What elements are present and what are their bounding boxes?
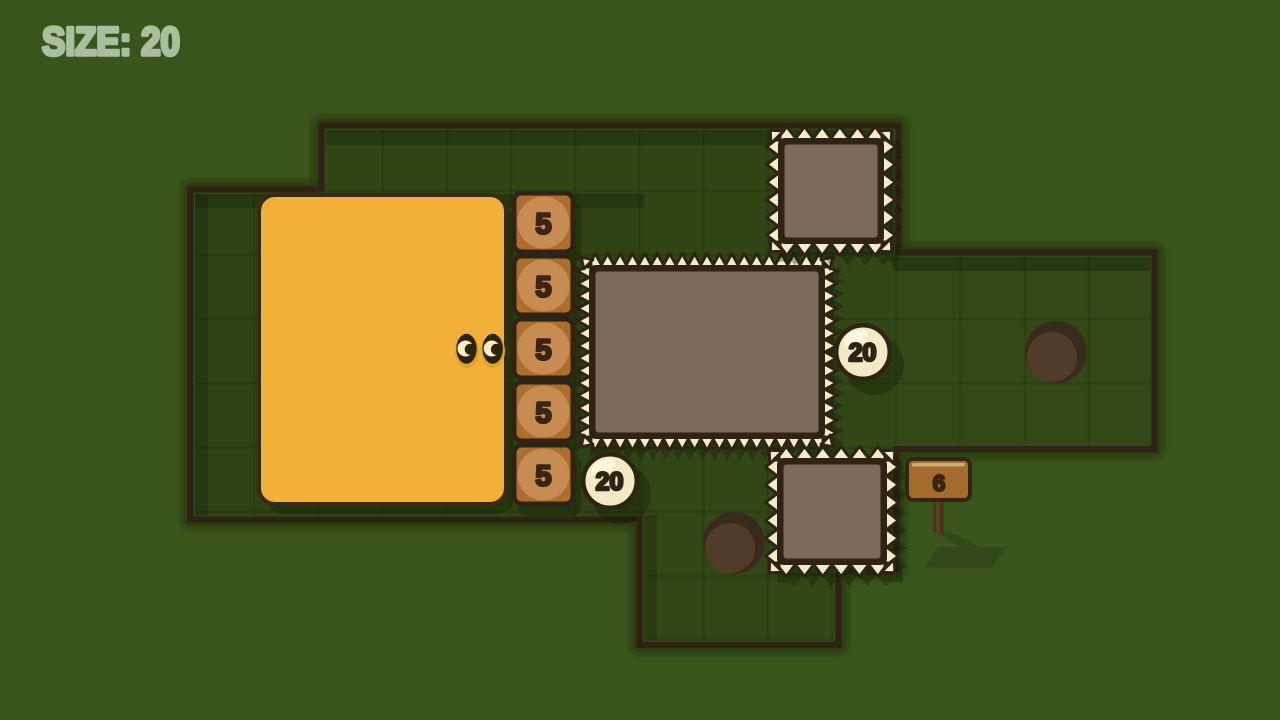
svg-text:6: 6 [933, 470, 946, 496]
svg-text:5: 5 [535, 272, 551, 304]
svg-text:5: 5 [535, 398, 551, 430]
svg-text:20: 20 [849, 339, 877, 367]
svg-text:SIZE: 20: SIZE: 20 [42, 20, 180, 64]
svg-text:5: 5 [535, 461, 551, 493]
svg-text:5: 5 [535, 335, 551, 367]
svg-text:5: 5 [535, 209, 551, 241]
svg-text:20: 20 [596, 468, 624, 496]
